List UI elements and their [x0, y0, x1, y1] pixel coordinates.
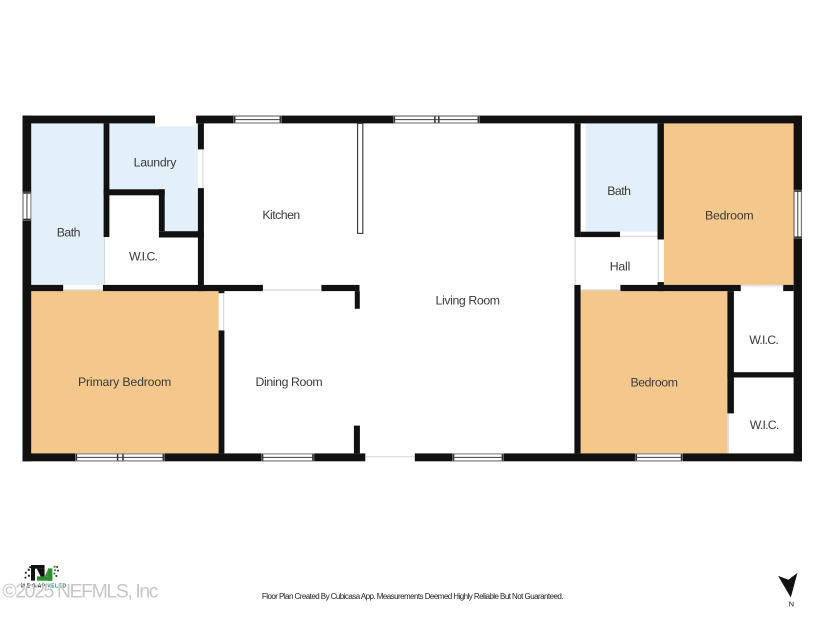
svg-text:Kitchen: Kitchen	[262, 208, 300, 222]
svg-text:N: N	[789, 600, 794, 609]
svg-text:Primary Bedroom: Primary Bedroom	[78, 375, 171, 389]
svg-text:W.I.C.: W.I.C.	[129, 250, 158, 264]
svg-text:©2025 NEFMLS, Inc: ©2025 NEFMLS, Inc	[2, 580, 158, 602]
svg-text:Bath: Bath	[57, 225, 81, 239]
svg-text:Dining Room: Dining Room	[256, 375, 323, 389]
svg-text:Bath: Bath	[607, 184, 631, 198]
svg-text:Bedroom: Bedroom	[630, 376, 678, 390]
svg-text:Laundry: Laundry	[134, 156, 178, 170]
svg-text:W.I.C.: W.I.C.	[749, 333, 779, 347]
svg-text:Bedroom: Bedroom	[705, 209, 754, 223]
svg-text:Floor Plan Created By Cubicasa: Floor Plan Created By Cubicasa App. Meas…	[262, 592, 564, 601]
svg-text:W.I.C.: W.I.C.	[750, 418, 780, 432]
svg-text:Living Room: Living Room	[436, 294, 501, 308]
svg-text:Hall: Hall	[610, 260, 631, 274]
